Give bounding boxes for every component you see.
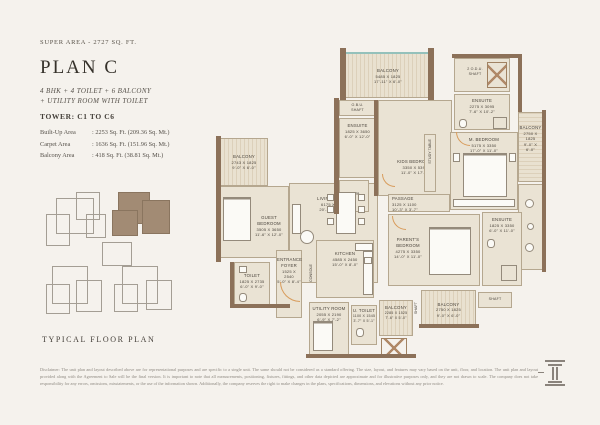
room-balcony-bottom-right: BALCONY 2750 X 1825 9'-0" X 6'-0"	[421, 290, 476, 326]
room-label: U. TOILET 1100 X 1545 3'-7" X 5'-1"	[352, 308, 376, 323]
area-row: Built-Up Area : 2253 Sq. Ft. (209.36 Sq.…	[40, 127, 170, 139]
key-plan-unit	[46, 284, 70, 314]
room-ensuite-kids: ENSUITE 1825 X 3650 6'-0" X 12'-0"	[339, 118, 376, 178]
bed-icon	[463, 153, 507, 197]
study-nook: STUDY TABLE	[424, 134, 436, 192]
wc-icon	[459, 119, 467, 128]
chair-icon	[525, 243, 534, 252]
room-u-toilet: U. TOILET 1100 X 1545 3'-7" X 5'-1"	[351, 305, 377, 345]
key-plan	[42, 186, 192, 328]
room-label: BALCONY 2750 X 1825 9'-0" X 6'-0"	[422, 302, 475, 319]
key-plan-unit	[46, 214, 70, 246]
shaft-label: SHAFT	[479, 297, 511, 302]
wall	[542, 110, 546, 272]
console-label: CONSOLE	[309, 264, 313, 282]
key-plan-unit	[86, 214, 106, 238]
wall	[374, 100, 378, 196]
room-balcony-left: BALCONY 2743 X 1825 9'-0" X 6'-0"	[219, 138, 268, 186]
disclaimer-text: Disclaimer: The unit plan and layout des…	[40, 366, 538, 387]
wall	[216, 136, 221, 262]
room-label: GUEST BEDROOM 3505 X 3650 11'-6" X 12'-0…	[250, 215, 288, 237]
super-area-text: SUPER AREA - 2727 SQ. FT.	[40, 39, 137, 46]
table-icon	[527, 223, 534, 230]
room-balcony-top: BALCONY 5485 X 1825 17'-11" X 6'-0"	[344, 52, 432, 98]
room-balcony-right: BALCONY 2750 X 1825 9'-0" X 6'-0"	[518, 112, 544, 182]
wc-icon	[356, 328, 364, 337]
side-table-icon	[453, 153, 460, 162]
key-plan-unit	[114, 284, 138, 312]
area-row: Balcony Area : 418 Sq. Ft. (38.81 Sq. Mt…	[40, 150, 170, 162]
wall	[334, 98, 339, 214]
chair-icon	[525, 199, 534, 208]
chair-icon	[327, 206, 334, 213]
key-plan-highlighted-unit	[142, 200, 170, 234]
page-title: PLAN C	[40, 57, 119, 79]
bed-icon	[429, 227, 471, 275]
floor-plan: LIVING/DINING 6175 X 5475 20'-3" X 18'-0…	[216, 26, 546, 366]
area-value: : 2253 Sq. Ft. (209.36 Sq. Mt.)	[92, 127, 170, 139]
basin-icon	[239, 266, 247, 273]
wall	[306, 354, 416, 358]
room-obu-shaft: O.B.U. SHAFT	[339, 100, 376, 116]
room-label: TOILET 1825 X 2735 6'-0" X 9'-0"	[235, 273, 269, 290]
wc-icon	[487, 239, 495, 248]
room-kitchen: KITCHEN 4585 X 2450 15'-0" X 8'-0"	[316, 240, 374, 298]
room-label: ENSUITE 2275 X 3095 7'-6" X 10'-2"	[455, 98, 509, 115]
plan-subtitle-line2: + UTILITY ROOM WITH TOILET	[40, 97, 148, 105]
study-table-label: STUDY TABLE	[428, 139, 432, 164]
chair-icon	[327, 194, 334, 201]
room-ensuite-parents: ENSUITE 1825 X 3350 6'-0" X 11'-0"	[482, 212, 522, 286]
key-plan-unit	[76, 280, 102, 312]
room-label: BALCONY 2285 X 1525 7'-6" X 5'-0"	[380, 305, 412, 320]
logo-part	[545, 384, 565, 386]
kitchen-counter-icon	[355, 243, 373, 251]
room-label: ENTRANCE FOYER 1525 X 2540 5'-0" X 8'-4"	[277, 257, 301, 285]
key-plan-caption: TYPICAL FLOOR PLAN	[42, 335, 155, 344]
wardrobe-icon	[453, 199, 515, 207]
chair-icon	[358, 218, 365, 225]
room-ensuite-master: ENSUITE 2275 X 3095 7'-6" X 10'-2"	[454, 94, 510, 130]
room-balcony-small: BALCONY 2285 X 1525 7'-6" X 5'-0"	[379, 300, 413, 336]
shaft-label: SHAFT	[414, 302, 418, 314]
room-label: BALCONY 5485 X 1825 17'-11" X 6'-0"	[345, 68, 431, 85]
bed-icon	[223, 197, 251, 241]
wall	[428, 48, 434, 100]
bed-icon	[313, 321, 333, 351]
shower-icon	[501, 265, 517, 281]
room-label: PARENT'S BEDROOM 4275 X 3350 14'-0" X 11…	[391, 237, 425, 259]
chair-icon	[358, 194, 365, 201]
area-label: Built-Up Area	[40, 127, 92, 139]
room-odu-shaft: 2 O.D.U. SHAFT	[454, 58, 510, 92]
logo-part	[548, 381, 562, 383]
chair-icon	[327, 218, 334, 225]
wall	[419, 324, 479, 328]
logo-part	[556, 367, 558, 380]
room-label: O.B.U. SHAFT	[340, 103, 375, 113]
room-toilet: TOILET 1825 X 2735 6'-0" X 9'-0"	[234, 262, 270, 306]
dining-table-icon	[336, 192, 356, 234]
wc-icon	[239, 293, 247, 302]
sofa-icon	[292, 204, 301, 234]
wall	[230, 262, 234, 308]
plan-subtitle-line1: 4 BHK + 4 TOILET + 6 BALCONY	[40, 87, 151, 95]
area-table: Built-Up Area : 2253 Sq. Ft. (209.36 Sq.…	[40, 127, 170, 162]
shaft-hatch	[487, 62, 507, 88]
sink-icon	[364, 257, 372, 264]
area-label: Balcony Area	[40, 150, 92, 162]
area-value: : 418 Sq. Ft. (38.81 Sq. Mt.)	[92, 150, 163, 162]
area-label: Carpet Area	[40, 139, 92, 151]
room-guest-bedroom: GUEST BEDROOM 3505 X 3650 11'-6" X 12'-0…	[219, 186, 289, 258]
key-plan-highlighted-unit	[112, 210, 138, 236]
tower-text: TOWER: C1 TO C6	[40, 112, 115, 121]
logo-arrow	[538, 372, 544, 373]
room-passage: PASSAGE 3125 X 1100 10'-3" X 3'-7"	[388, 194, 450, 212]
room-label: ENSUITE 1825 X 3650 6'-0" X 12'-0"	[340, 123, 375, 140]
logo-part	[548, 364, 562, 366]
area-row: Carpet Area : 1636 Sq. Ft. (151.96 Sq. M…	[40, 139, 170, 151]
wall	[518, 54, 522, 112]
brochure-page: SUPER AREA - 2727 SQ. FT. PLAN C 4 BHK +…	[0, 0, 600, 425]
shaft-box: SHAFT	[478, 292, 512, 308]
chair-icon	[358, 206, 365, 213]
wall	[452, 54, 522, 58]
area-value: : 1636 Sq. Ft. (151.96 Sq. Mt.)	[92, 139, 170, 151]
room-label: ENSUITE 1825 X 3350 6'-0" X 11'-0"	[483, 217, 521, 234]
side-table-icon	[509, 153, 516, 162]
key-plan-unit	[146, 280, 172, 310]
room-label: PASSAGE 3125 X 1100 10'-3" X 3'-7"	[392, 196, 418, 213]
wall	[232, 304, 290, 308]
logo-part	[545, 360, 565, 362]
room-utility: UTILITY ROOM 2055 X 2190 6'-9" X 7'-2"	[309, 302, 349, 356]
key-plan-core	[102, 242, 132, 266]
wall	[340, 48, 346, 100]
logo-part	[552, 367, 554, 380]
round-table-icon	[300, 230, 314, 244]
developer-logo-icon	[545, 360, 569, 390]
room-label: BALCONY 2750 X 1825 9'-0" X 6'-0"	[519, 125, 542, 152]
room-master-bedroom: M. BEDROOM 5175 X 3350 17'-0" X 11'-0"	[450, 132, 518, 210]
shower-icon	[493, 117, 507, 129]
room-label: BALCONY 2743 X 1825 9'-0" X 6'-0"	[221, 154, 267, 171]
